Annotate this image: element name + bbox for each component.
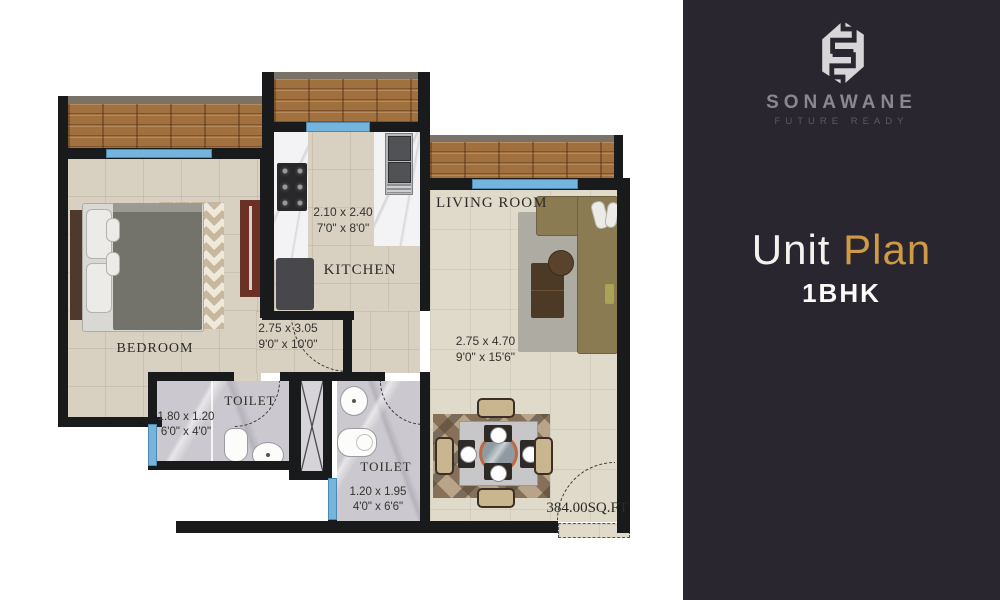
- total-area-label: 384.00SQ.FT: [536, 500, 628, 517]
- toilet1-dims: 1.80 x 1.20 6'0" x 4'0": [155, 410, 217, 440]
- shaft-cross-icon: [301, 381, 323, 472]
- coffee-table-seam: [531, 290, 564, 291]
- bed-blanket-fold: [113, 203, 202, 212]
- brand-tagline: FUTURE READY: [683, 116, 1000, 127]
- toilet1-label: TOILET: [214, 393, 286, 409]
- dim-feet: 6'0" x 4'0": [155, 425, 217, 440]
- dresser-mirror: [249, 206, 252, 290]
- sink-basin: [388, 136, 411, 161]
- wall: [148, 372, 234, 381]
- wall: [58, 417, 162, 427]
- dining-chair: [477, 488, 515, 508]
- dining-chair: [477, 398, 515, 418]
- wall: [617, 178, 630, 533]
- toilet2-label: TOILET: [350, 459, 422, 475]
- wall: [148, 461, 298, 470]
- wall: [420, 122, 430, 311]
- kitchen-window: [306, 122, 370, 132]
- toilet2-wc: [337, 428, 377, 457]
- dining-chair: [435, 437, 454, 475]
- toilet2-sink: [340, 386, 368, 416]
- bedroom-deck-edge: [58, 96, 268, 104]
- living-window: [472, 179, 578, 189]
- toilet1-wc: [224, 428, 248, 462]
- dim-meters: 2.75 x 4.70: [443, 334, 528, 350]
- bedroom-deck: [68, 104, 268, 150]
- sink-drainboard: [387, 184, 411, 193]
- sink-basin: [388, 162, 411, 183]
- kitchen-dims: 2.10 x 2.40 7'0" x 8'0": [308, 205, 378, 236]
- sink-drain: [352, 399, 356, 403]
- stove: [277, 163, 307, 211]
- title-accent: Plan: [843, 226, 931, 273]
- kitchen-sink: [385, 133, 413, 195]
- shaft-floor: [301, 381, 323, 472]
- plate: [460, 446, 477, 463]
- wc-seat: [356, 434, 373, 451]
- dim-meters: 1.80 x 1.20: [155, 410, 217, 425]
- toilet2-dims: 1.20 x 1.95 4'0" x 6'6": [346, 485, 410, 515]
- sink-drain: [266, 453, 270, 457]
- bed-headboard: [70, 210, 82, 320]
- brand-name: SONAWANE: [683, 92, 1000, 114]
- bedroom-window: [106, 149, 212, 158]
- toilet2-window: [328, 478, 337, 520]
- unit-type-label: 1BHK: [683, 278, 1000, 309]
- kitchen-label: KITCHEN: [318, 262, 402, 279]
- kitchen-deck: [274, 79, 418, 122]
- unit-plan-brochure: BEDROOM 2.75 x 3.05 9'0" x 10'0" 2.10 x …: [0, 0, 1000, 600]
- living-deck-edge: [430, 135, 622, 142]
- wall: [614, 135, 623, 178]
- dim-feet: 7'0" x 8'0": [308, 221, 378, 237]
- page-title: Unit Plan: [683, 226, 1000, 274]
- dim-meters: 2.75 x 3.05: [250, 321, 326, 337]
- wall: [289, 372, 301, 480]
- wall: [262, 311, 354, 320]
- floor-plan: BEDROOM 2.75 x 3.05 9'0" x 10'0" 2.10 x …: [0, 0, 683, 600]
- dim-feet: 4'0" x 6'6": [346, 500, 410, 515]
- bed-cushion: [106, 252, 120, 276]
- wall: [420, 372, 430, 533]
- dim-feet: 9'0" x 15'6": [443, 350, 528, 366]
- living-deck: [430, 142, 614, 178]
- title-primary: Unit: [752, 226, 831, 273]
- side-table: [548, 250, 574, 276]
- bedroom-dims: 2.75 x 3.05 9'0" x 10'0": [250, 321, 326, 352]
- bed-blanket: [113, 203, 202, 330]
- wall: [332, 372, 385, 381]
- dim-feet: 9'0" x 10'0": [250, 337, 326, 353]
- living-room-label: LIVING ROOM: [436, 195, 556, 212]
- door-leaf: [343, 315, 352, 372]
- dining-chair: [534, 437, 553, 475]
- dresser: [240, 200, 261, 297]
- bedroom-label: BEDROOM: [105, 341, 205, 357]
- brand-logo-icon: [819, 20, 867, 86]
- fridge: [276, 258, 314, 310]
- kitchen-deck-edge: [262, 72, 430, 79]
- dim-meters: 2.10 x 2.40: [308, 205, 378, 221]
- wall: [58, 96, 68, 426]
- living-dims: 2.75 x 4.70 9'0" x 15'6": [443, 334, 528, 365]
- bed-cushion: [106, 218, 120, 242]
- brand-panel: SONAWANE FUTURE READY Unit Plan 1BHK: [683, 0, 1000, 600]
- sofa-cushion-green: [605, 284, 614, 304]
- plate: [490, 427, 507, 444]
- wall: [323, 372, 332, 480]
- wall: [176, 521, 558, 533]
- plate: [490, 465, 507, 482]
- wall: [262, 72, 274, 320]
- dim-meters: 1.20 x 1.95: [346, 485, 410, 500]
- wall: [418, 72, 430, 122]
